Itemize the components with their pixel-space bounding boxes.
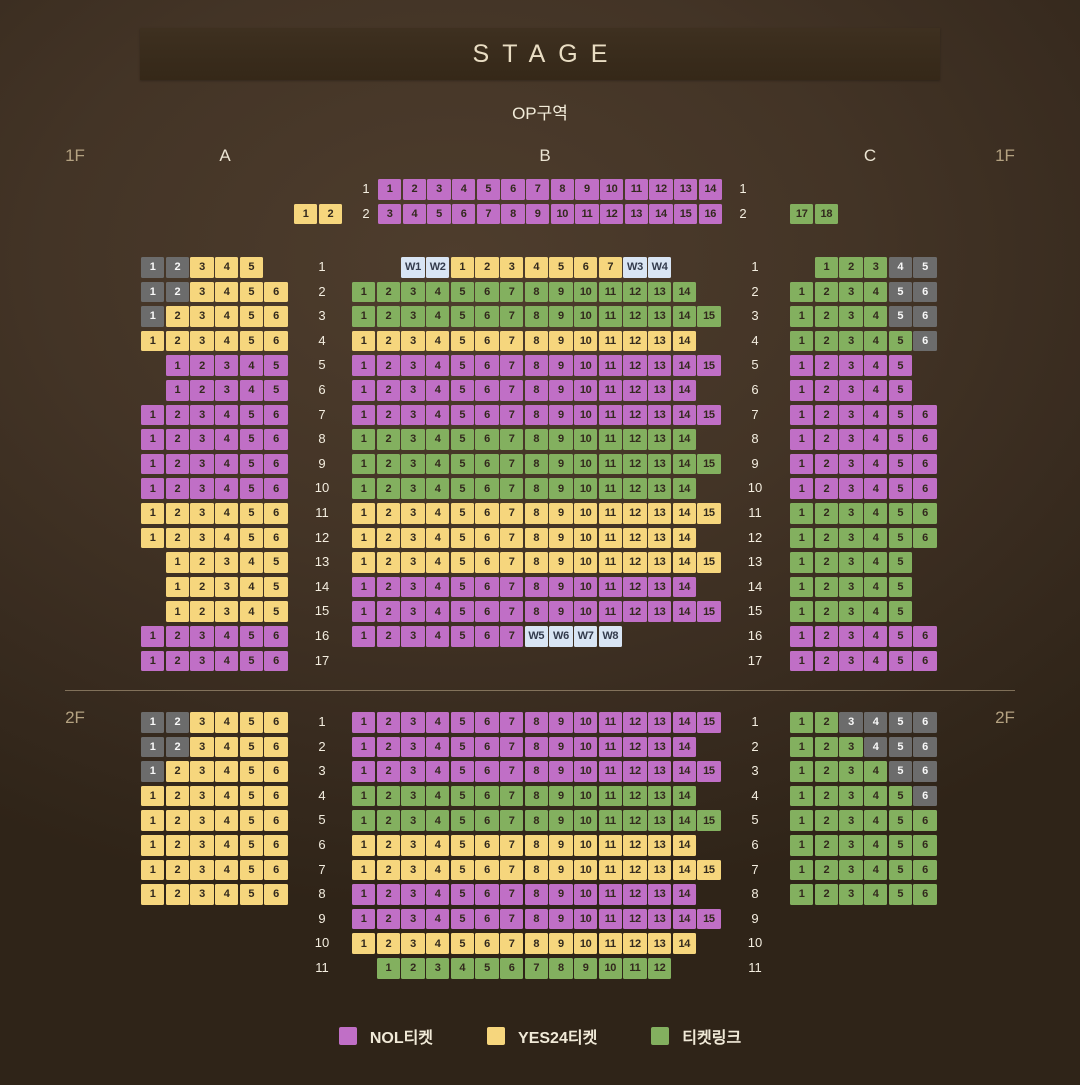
seat-1f-c-15-5[interactable]: 5 bbox=[889, 601, 912, 622]
seat-2f-b-5-7[interactable]: 7 bbox=[500, 810, 523, 831]
seat-1f-b-9-11[interactable]: 11 bbox=[599, 454, 622, 475]
seat-1f-b-6-9[interactable]: 9 bbox=[549, 380, 572, 401]
seat-1f-c-9-4[interactable]: 4 bbox=[864, 454, 887, 475]
seat-1f-c-17-2[interactable]: 2 bbox=[815, 651, 838, 672]
seat-2f-b-11-3[interactable]: 3 bbox=[426, 958, 449, 979]
seat-1f-b-4-12[interactable]: 12 bbox=[623, 331, 646, 352]
seat-1f-b-12-11[interactable]: 11 bbox=[599, 528, 622, 549]
seat-1f-b-6-5[interactable]: 5 bbox=[451, 380, 474, 401]
seat-2f-c-6-4[interactable]: 4 bbox=[864, 835, 887, 856]
seat-1f-b-11-10[interactable]: 10 bbox=[574, 503, 597, 524]
seat-1f-b-5-12[interactable]: 12 bbox=[623, 355, 646, 376]
seat-2f-b-1-7[interactable]: 7 bbox=[500, 712, 523, 733]
seat-2f-b-1-3[interactable]: 3 bbox=[401, 712, 424, 733]
seat-1f-b-10-14[interactable]: 14 bbox=[673, 478, 696, 499]
seat-op-c-2-18[interactable]: 18 bbox=[815, 204, 838, 225]
seat-1f-b-15-14[interactable]: 14 bbox=[673, 601, 696, 622]
seat-1f-b-2-2[interactable]: 2 bbox=[377, 282, 400, 303]
seat-1f-b-4-2[interactable]: 2 bbox=[377, 331, 400, 352]
seat-2f-a-4-5[interactable]: 5 bbox=[240, 786, 263, 807]
seat-1f-b-8-13[interactable]: 13 bbox=[648, 429, 671, 450]
seat-1f-c-9-2[interactable]: 2 bbox=[815, 454, 838, 475]
seat-1f-a-14-4[interactable]: 4 bbox=[240, 577, 263, 598]
seat-1f-a-16-1[interactable]: 1 bbox=[141, 626, 164, 647]
seat-2f-a-3-5[interactable]: 5 bbox=[240, 761, 263, 782]
seat-1f-c-16-6[interactable]: 6 bbox=[913, 626, 936, 647]
seat-2f-b-7-2[interactable]: 2 bbox=[377, 860, 400, 881]
seat-1f-b-1-W3[interactable]: W3 bbox=[623, 257, 646, 278]
seat-2f-b-9-8[interactable]: 8 bbox=[525, 909, 548, 930]
seat-1f-a-12-2[interactable]: 2 bbox=[166, 528, 189, 549]
seat-1f-c-13-4[interactable]: 4 bbox=[864, 552, 887, 573]
seat-1f-a-9-2[interactable]: 2 bbox=[166, 454, 189, 475]
seat-2f-b-3-13[interactable]: 13 bbox=[648, 761, 671, 782]
seat-1f-c-7-4[interactable]: 4 bbox=[864, 405, 887, 426]
seat-1f-c-3-2[interactable]: 2 bbox=[815, 306, 838, 327]
seat-op-b-2-4[interactable]: 4 bbox=[403, 204, 426, 225]
seat-2f-b-6-14[interactable]: 14 bbox=[673, 835, 696, 856]
seat-1f-a-3-6[interactable]: 6 bbox=[264, 306, 287, 327]
seat-2f-a-3-2[interactable]: 2 bbox=[166, 761, 189, 782]
seat-1f-c-17-3[interactable]: 3 bbox=[839, 651, 862, 672]
seat-2f-b-11-4[interactable]: 4 bbox=[451, 958, 474, 979]
seat-1f-c-4-2[interactable]: 2 bbox=[815, 331, 838, 352]
seat-1f-b-3-8[interactable]: 8 bbox=[525, 306, 548, 327]
seat-1f-b-11-4[interactable]: 4 bbox=[426, 503, 449, 524]
seat-1f-b-9-5[interactable]: 5 bbox=[451, 454, 474, 475]
seat-2f-b-5-4[interactable]: 4 bbox=[426, 810, 449, 831]
seat-1f-b-2-13[interactable]: 13 bbox=[648, 282, 671, 303]
seat-1f-b-13-6[interactable]: 6 bbox=[475, 552, 498, 573]
seat-1f-c-15-2[interactable]: 2 bbox=[815, 601, 838, 622]
seat-1f-b-10-11[interactable]: 11 bbox=[599, 478, 622, 499]
seat-1f-b-6-10[interactable]: 10 bbox=[574, 380, 597, 401]
seat-op-b-1-14[interactable]: 14 bbox=[699, 179, 722, 200]
seat-2f-b-3-10[interactable]: 10 bbox=[574, 761, 597, 782]
seat-1f-b-7-6[interactable]: 6 bbox=[475, 405, 498, 426]
seat-2f-c-1-2[interactable]: 2 bbox=[815, 712, 838, 733]
seat-1f-b-14-11[interactable]: 11 bbox=[599, 577, 622, 598]
seat-1f-b-5-5[interactable]: 5 bbox=[451, 355, 474, 376]
seat-2f-a-4-6[interactable]: 6 bbox=[264, 786, 287, 807]
seat-1f-b-14-1[interactable]: 1 bbox=[352, 577, 375, 598]
seat-1f-b-14-6[interactable]: 6 bbox=[475, 577, 498, 598]
seat-1f-b-15-10[interactable]: 10 bbox=[574, 601, 597, 622]
seat-1f-b-16-2[interactable]: 2 bbox=[377, 626, 400, 647]
seat-1f-b-3-3[interactable]: 3 bbox=[401, 306, 424, 327]
seat-1f-b-4-1[interactable]: 1 bbox=[352, 331, 375, 352]
seat-1f-b-8-4[interactable]: 4 bbox=[426, 429, 449, 450]
seat-1f-b-10-4[interactable]: 4 bbox=[426, 478, 449, 499]
seat-op-b-1-8[interactable]: 8 bbox=[551, 179, 574, 200]
seat-1f-c-8-6[interactable]: 6 bbox=[913, 429, 936, 450]
seat-1f-b-10-1[interactable]: 1 bbox=[352, 478, 375, 499]
seat-1f-b-5-3[interactable]: 3 bbox=[401, 355, 424, 376]
seat-1f-c-12-2[interactable]: 2 bbox=[815, 528, 838, 549]
seat-1f-c-10-6[interactable]: 6 bbox=[913, 478, 936, 499]
seat-1f-b-10-5[interactable]: 5 bbox=[451, 478, 474, 499]
seat-1f-b-8-14[interactable]: 14 bbox=[673, 429, 696, 450]
seat-2f-b-11-9[interactable]: 9 bbox=[574, 958, 597, 979]
seat-2f-a-4-1[interactable]: 1 bbox=[141, 786, 164, 807]
seat-1f-b-7-1[interactable]: 1 bbox=[352, 405, 375, 426]
seat-1f-b-11-15[interactable]: 15 bbox=[697, 503, 720, 524]
seat-1f-a-14-3[interactable]: 3 bbox=[215, 577, 238, 598]
seat-2f-b-2-1[interactable]: 1 bbox=[352, 737, 375, 758]
seat-1f-a-9-4[interactable]: 4 bbox=[215, 454, 238, 475]
seat-1f-b-2-3[interactable]: 3 bbox=[401, 282, 424, 303]
seat-1f-c-3-4[interactable]: 4 bbox=[864, 306, 887, 327]
seat-2f-b-9-12[interactable]: 12 bbox=[623, 909, 646, 930]
seat-2f-b-5-5[interactable]: 5 bbox=[451, 810, 474, 831]
seat-1f-c-10-1[interactable]: 1 bbox=[790, 478, 813, 499]
seat-1f-a-7-2[interactable]: 2 bbox=[166, 405, 189, 426]
seat-2f-b-9-5[interactable]: 5 bbox=[451, 909, 474, 930]
seat-2f-b-5-13[interactable]: 13 bbox=[648, 810, 671, 831]
seat-1f-a-9-1[interactable]: 1 bbox=[141, 454, 164, 475]
seat-1f-a-8-1[interactable]: 1 bbox=[141, 429, 164, 450]
seat-2f-b-5-8[interactable]: 8 bbox=[525, 810, 548, 831]
seat-1f-c-7-3[interactable]: 3 bbox=[839, 405, 862, 426]
seat-2f-c-7-1[interactable]: 1 bbox=[790, 860, 813, 881]
seat-op-b-1-7[interactable]: 7 bbox=[526, 179, 549, 200]
seat-1f-c-12-4[interactable]: 4 bbox=[864, 528, 887, 549]
seat-2f-b-2-10[interactable]: 10 bbox=[574, 737, 597, 758]
seat-1f-c-6-2[interactable]: 2 bbox=[815, 380, 838, 401]
seat-2f-a-7-1[interactable]: 1 bbox=[141, 860, 164, 881]
seat-2f-a-7-4[interactable]: 4 bbox=[215, 860, 238, 881]
seat-2f-a-5-6[interactable]: 6 bbox=[264, 810, 287, 831]
seat-1f-b-7-9[interactable]: 9 bbox=[549, 405, 572, 426]
seat-2f-c-8-5[interactable]: 5 bbox=[889, 884, 912, 905]
seat-2f-b-11-5[interactable]: 5 bbox=[475, 958, 498, 979]
seat-1f-b-9-8[interactable]: 8 bbox=[525, 454, 548, 475]
seat-1f-a-15-4[interactable]: 4 bbox=[240, 601, 263, 622]
seat-1f-a-3-4[interactable]: 4 bbox=[215, 306, 238, 327]
seat-2f-b-9-13[interactable]: 13 bbox=[648, 909, 671, 930]
seat-1f-b-2-14[interactable]: 14 bbox=[673, 282, 696, 303]
seat-1f-b-14-4[interactable]: 4 bbox=[426, 577, 449, 598]
seat-2f-b-5-3[interactable]: 3 bbox=[401, 810, 424, 831]
seat-1f-b-4-14[interactable]: 14 bbox=[673, 331, 696, 352]
seat-2f-b-1-14[interactable]: 14 bbox=[673, 712, 696, 733]
seat-2f-b-10-10[interactable]: 10 bbox=[574, 933, 597, 954]
seat-1f-b-15-7[interactable]: 7 bbox=[500, 601, 523, 622]
seat-1f-c-14-5[interactable]: 5 bbox=[889, 577, 912, 598]
seat-2f-b-3-2[interactable]: 2 bbox=[377, 761, 400, 782]
seat-1f-b-5-6[interactable]: 6 bbox=[475, 355, 498, 376]
seat-2f-b-11-2[interactable]: 2 bbox=[401, 958, 424, 979]
seat-1f-b-11-8[interactable]: 8 bbox=[525, 503, 548, 524]
seat-1f-a-11-3[interactable]: 3 bbox=[190, 503, 213, 524]
seat-1f-c-11-6[interactable]: 6 bbox=[913, 503, 936, 524]
seat-op-a-2-1[interactable]: 1 bbox=[294, 204, 317, 225]
seat-2f-b-2-4[interactable]: 4 bbox=[426, 737, 449, 758]
seat-1f-b-1-5[interactable]: 5 bbox=[549, 257, 572, 278]
seat-2f-b-5-1[interactable]: 1 bbox=[352, 810, 375, 831]
seat-2f-b-6-11[interactable]: 11 bbox=[599, 835, 622, 856]
seat-1f-b-13-1[interactable]: 1 bbox=[352, 552, 375, 573]
seat-1f-b-14-9[interactable]: 9 bbox=[549, 577, 572, 598]
seat-2f-b-4-12[interactable]: 12 bbox=[623, 786, 646, 807]
seat-1f-c-14-3[interactable]: 3 bbox=[839, 577, 862, 598]
seat-1f-b-14-14[interactable]: 14 bbox=[673, 577, 696, 598]
seat-1f-b-13-4[interactable]: 4 bbox=[426, 552, 449, 573]
seat-2f-b-2-13[interactable]: 13 bbox=[648, 737, 671, 758]
seat-1f-a-16-5[interactable]: 5 bbox=[240, 626, 263, 647]
seat-2f-b-5-14[interactable]: 14 bbox=[673, 810, 696, 831]
seat-1f-b-4-13[interactable]: 13 bbox=[648, 331, 671, 352]
seat-2f-b-3-1[interactable]: 1 bbox=[352, 761, 375, 782]
seat-2f-b-9-11[interactable]: 11 bbox=[599, 909, 622, 930]
seat-2f-b-5-6[interactable]: 6 bbox=[475, 810, 498, 831]
seat-1f-c-16-1[interactable]: 1 bbox=[790, 626, 813, 647]
seat-1f-c-2-4[interactable]: 4 bbox=[864, 282, 887, 303]
seat-2f-b-3-5[interactable]: 5 bbox=[451, 761, 474, 782]
seat-2f-a-3-4[interactable]: 4 bbox=[215, 761, 238, 782]
seat-1f-a-10-6[interactable]: 6 bbox=[264, 478, 287, 499]
seat-2f-a-3-3[interactable]: 3 bbox=[190, 761, 213, 782]
seat-2f-b-6-5[interactable]: 5 bbox=[451, 835, 474, 856]
seat-1f-b-16-W7[interactable]: W7 bbox=[574, 626, 597, 647]
seat-2f-b-10-7[interactable]: 7 bbox=[500, 933, 523, 954]
seat-2f-b-9-6[interactable]: 6 bbox=[475, 909, 498, 930]
seat-op-b-1-9[interactable]: 9 bbox=[575, 179, 598, 200]
seat-1f-b-10-7[interactable]: 7 bbox=[500, 478, 523, 499]
seat-1f-a-8-6[interactable]: 6 bbox=[264, 429, 287, 450]
seat-1f-c-8-4[interactable]: 4 bbox=[864, 429, 887, 450]
seat-2f-b-1-1[interactable]: 1 bbox=[352, 712, 375, 733]
seat-1f-a-13-1[interactable]: 1 bbox=[166, 552, 189, 573]
seat-2f-b-4-6[interactable]: 6 bbox=[475, 786, 498, 807]
seat-1f-b-11-13[interactable]: 13 bbox=[648, 503, 671, 524]
seat-2f-b-4-8[interactable]: 8 bbox=[525, 786, 548, 807]
seat-1f-a-16-2[interactable]: 2 bbox=[166, 626, 189, 647]
seat-2f-b-9-10[interactable]: 10 bbox=[574, 909, 597, 930]
seat-1f-c-10-2[interactable]: 2 bbox=[815, 478, 838, 499]
seat-2f-b-3-6[interactable]: 6 bbox=[475, 761, 498, 782]
seat-2f-c-7-3[interactable]: 3 bbox=[839, 860, 862, 881]
seat-1f-a-4-6[interactable]: 6 bbox=[264, 331, 287, 352]
seat-1f-a-5-3[interactable]: 3 bbox=[215, 355, 238, 376]
seat-1f-b-11-5[interactable]: 5 bbox=[451, 503, 474, 524]
seat-2f-c-2-2[interactable]: 2 bbox=[815, 737, 838, 758]
seat-1f-b-6-11[interactable]: 11 bbox=[599, 380, 622, 401]
seat-1f-c-11-1[interactable]: 1 bbox=[790, 503, 813, 524]
seat-op-b-1-12[interactable]: 12 bbox=[649, 179, 672, 200]
seat-1f-b-2-1[interactable]: 1 bbox=[352, 282, 375, 303]
seat-1f-c-3-3[interactable]: 3 bbox=[839, 306, 862, 327]
seat-2f-b-5-15[interactable]: 15 bbox=[697, 810, 720, 831]
seat-1f-a-3-3[interactable]: 3 bbox=[190, 306, 213, 327]
seat-1f-a-13-3[interactable]: 3 bbox=[215, 552, 238, 573]
seat-1f-b-4-7[interactable]: 7 bbox=[500, 331, 523, 352]
seat-1f-b-9-7[interactable]: 7 bbox=[500, 454, 523, 475]
seat-op-b-2-6[interactable]: 6 bbox=[452, 204, 475, 225]
seat-1f-a-16-6[interactable]: 6 bbox=[264, 626, 287, 647]
seat-1f-b-7-5[interactable]: 5 bbox=[451, 405, 474, 426]
seat-2f-a-8-3[interactable]: 3 bbox=[190, 884, 213, 905]
seat-1f-b-13-3[interactable]: 3 bbox=[401, 552, 424, 573]
seat-1f-b-12-14[interactable]: 14 bbox=[673, 528, 696, 549]
seat-1f-a-3-5[interactable]: 5 bbox=[240, 306, 263, 327]
seat-1f-b-11-6[interactable]: 6 bbox=[475, 503, 498, 524]
seat-1f-b-15-1[interactable]: 1 bbox=[352, 601, 375, 622]
seat-1f-b-4-9[interactable]: 9 bbox=[549, 331, 572, 352]
seat-2f-b-2-11[interactable]: 11 bbox=[599, 737, 622, 758]
seat-1f-c-4-5[interactable]: 5 bbox=[889, 331, 912, 352]
seat-1f-a-12-1[interactable]: 1 bbox=[141, 528, 164, 549]
seat-1f-b-2-12[interactable]: 12 bbox=[623, 282, 646, 303]
seat-1f-b-16-W6[interactable]: W6 bbox=[549, 626, 572, 647]
seat-1f-c-12-6[interactable]: 6 bbox=[913, 528, 936, 549]
seat-1f-c-17-4[interactable]: 4 bbox=[864, 651, 887, 672]
seat-1f-b-12-5[interactable]: 5 bbox=[451, 528, 474, 549]
seat-1f-a-14-2[interactable]: 2 bbox=[190, 577, 213, 598]
seat-1f-a-1-3[interactable]: 3 bbox=[190, 257, 213, 278]
seat-1f-a-12-5[interactable]: 5 bbox=[240, 528, 263, 549]
seat-2f-a-7-5[interactable]: 5 bbox=[240, 860, 263, 881]
seat-1f-c-14-2[interactable]: 2 bbox=[815, 577, 838, 598]
seat-2f-a-6-6[interactable]: 6 bbox=[264, 835, 287, 856]
seat-1f-b-8-12[interactable]: 12 bbox=[623, 429, 646, 450]
seat-2f-c-8-6[interactable]: 6 bbox=[913, 884, 936, 905]
seat-2f-c-3-4[interactable]: 4 bbox=[864, 761, 887, 782]
seat-op-b-2-13[interactable]: 13 bbox=[625, 204, 648, 225]
seat-2f-b-6-3[interactable]: 3 bbox=[401, 835, 424, 856]
seat-2f-b-7-8[interactable]: 8 bbox=[525, 860, 548, 881]
seat-1f-b-3-14[interactable]: 14 bbox=[673, 306, 696, 327]
seat-2f-b-4-1[interactable]: 1 bbox=[352, 786, 375, 807]
seat-1f-c-17-1[interactable]: 1 bbox=[790, 651, 813, 672]
seat-1f-b-11-1[interactable]: 1 bbox=[352, 503, 375, 524]
seat-2f-c-5-3[interactable]: 3 bbox=[839, 810, 862, 831]
seat-1f-c-13-5[interactable]: 5 bbox=[889, 552, 912, 573]
seat-op-b-1-2[interactable]: 2 bbox=[403, 179, 426, 200]
seat-1f-c-8-2[interactable]: 2 bbox=[815, 429, 838, 450]
seat-2f-b-3-8[interactable]: 8 bbox=[525, 761, 548, 782]
seat-1f-b-13-10[interactable]: 10 bbox=[574, 552, 597, 573]
seat-2f-b-10-6[interactable]: 6 bbox=[475, 933, 498, 954]
seat-2f-b-1-2[interactable]: 2 bbox=[377, 712, 400, 733]
seat-1f-a-6-1[interactable]: 1 bbox=[166, 380, 189, 401]
seat-2f-a-8-2[interactable]: 2 bbox=[166, 884, 189, 905]
seat-1f-b-8-1[interactable]: 1 bbox=[352, 429, 375, 450]
seat-2f-a-6-5[interactable]: 5 bbox=[240, 835, 263, 856]
seat-1f-c-6-3[interactable]: 3 bbox=[839, 380, 862, 401]
seat-1f-b-2-5[interactable]: 5 bbox=[451, 282, 474, 303]
seat-2f-c-2-1[interactable]: 1 bbox=[790, 737, 813, 758]
seat-2f-b-9-3[interactable]: 3 bbox=[401, 909, 424, 930]
seat-2f-b-10-3[interactable]: 3 bbox=[401, 933, 424, 954]
seat-2f-c-6-1[interactable]: 1 bbox=[790, 835, 813, 856]
seat-2f-c-5-5[interactable]: 5 bbox=[889, 810, 912, 831]
seat-2f-a-4-4[interactable]: 4 bbox=[215, 786, 238, 807]
seat-2f-b-6-7[interactable]: 7 bbox=[500, 835, 523, 856]
seat-1f-a-12-3[interactable]: 3 bbox=[190, 528, 213, 549]
seat-1f-a-17-2[interactable]: 2 bbox=[166, 651, 189, 672]
seat-2f-b-7-9[interactable]: 9 bbox=[549, 860, 572, 881]
seat-1f-b-2-8[interactable]: 8 bbox=[525, 282, 548, 303]
seat-1f-b-7-3[interactable]: 3 bbox=[401, 405, 424, 426]
seat-1f-c-8-3[interactable]: 3 bbox=[839, 429, 862, 450]
seat-1f-b-1-W2[interactable]: W2 bbox=[426, 257, 449, 278]
seat-1f-b-9-2[interactable]: 2 bbox=[377, 454, 400, 475]
seat-2f-a-1-3[interactable]: 3 bbox=[190, 712, 213, 733]
seat-2f-b-4-7[interactable]: 7 bbox=[500, 786, 523, 807]
seat-op-a-2-2[interactable]: 2 bbox=[319, 204, 342, 225]
seat-1f-b-9-4[interactable]: 4 bbox=[426, 454, 449, 475]
seat-2f-b-3-4[interactable]: 4 bbox=[426, 761, 449, 782]
seat-2f-c-4-1[interactable]: 1 bbox=[790, 786, 813, 807]
seat-2f-a-7-6[interactable]: 6 bbox=[264, 860, 287, 881]
seat-2f-b-2-6[interactable]: 6 bbox=[475, 737, 498, 758]
seat-1f-b-7-11[interactable]: 11 bbox=[599, 405, 622, 426]
seat-2f-b-9-14[interactable]: 14 bbox=[673, 909, 696, 930]
seat-1f-b-9-14[interactable]: 14 bbox=[673, 454, 696, 475]
seat-1f-a-12-6[interactable]: 6 bbox=[264, 528, 287, 549]
seat-1f-b-9-6[interactable]: 6 bbox=[475, 454, 498, 475]
seat-2f-c-6-6[interactable]: 6 bbox=[913, 835, 936, 856]
seat-1f-b-2-6[interactable]: 6 bbox=[475, 282, 498, 303]
seat-1f-b-13-13[interactable]: 13 bbox=[648, 552, 671, 573]
seat-1f-c-16-4[interactable]: 4 bbox=[864, 626, 887, 647]
seat-1f-c-1-2[interactable]: 2 bbox=[839, 257, 862, 278]
seat-2f-b-9-1[interactable]: 1 bbox=[352, 909, 375, 930]
seat-1f-c-9-6[interactable]: 6 bbox=[913, 454, 936, 475]
seat-1f-a-10-5[interactable]: 5 bbox=[240, 478, 263, 499]
seat-1f-a-11-2[interactable]: 2 bbox=[166, 503, 189, 524]
seat-1f-b-10-8[interactable]: 8 bbox=[525, 478, 548, 499]
seat-2f-b-8-11[interactable]: 11 bbox=[599, 884, 622, 905]
seat-1f-a-9-5[interactable]: 5 bbox=[240, 454, 263, 475]
seat-1f-b-15-11[interactable]: 11 bbox=[599, 601, 622, 622]
seat-2f-a-6-3[interactable]: 3 bbox=[190, 835, 213, 856]
seat-2f-b-6-13[interactable]: 13 bbox=[648, 835, 671, 856]
seat-2f-b-4-2[interactable]: 2 bbox=[377, 786, 400, 807]
seat-1f-b-6-8[interactable]: 8 bbox=[525, 380, 548, 401]
seat-1f-b-5-9[interactable]: 9 bbox=[549, 355, 572, 376]
seat-1f-c-12-1[interactable]: 1 bbox=[790, 528, 813, 549]
seat-1f-b-5-8[interactable]: 8 bbox=[525, 355, 548, 376]
seat-1f-b-4-10[interactable]: 10 bbox=[574, 331, 597, 352]
seat-2f-b-8-9[interactable]: 9 bbox=[549, 884, 572, 905]
seat-2f-b-1-11[interactable]: 11 bbox=[599, 712, 622, 733]
seat-2f-b-11-12[interactable]: 12 bbox=[648, 958, 671, 979]
seat-2f-b-11-10[interactable]: 10 bbox=[599, 958, 622, 979]
seat-1f-b-4-3[interactable]: 3 bbox=[401, 331, 424, 352]
seat-1f-b-12-8[interactable]: 8 bbox=[525, 528, 548, 549]
seat-2f-b-9-7[interactable]: 7 bbox=[500, 909, 523, 930]
seat-1f-a-17-6[interactable]: 6 bbox=[264, 651, 287, 672]
seat-2f-c-7-5[interactable]: 5 bbox=[889, 860, 912, 881]
seat-1f-b-12-6[interactable]: 6 bbox=[475, 528, 498, 549]
seat-1f-b-12-2[interactable]: 2 bbox=[377, 528, 400, 549]
seat-1f-b-6-1[interactable]: 1 bbox=[352, 380, 375, 401]
seat-2f-c-5-1[interactable]: 1 bbox=[790, 810, 813, 831]
seat-1f-b-2-4[interactable]: 4 bbox=[426, 282, 449, 303]
seat-1f-b-1-W4[interactable]: W4 bbox=[648, 257, 671, 278]
seat-1f-b-5-14[interactable]: 14 bbox=[673, 355, 696, 376]
seat-1f-b-8-3[interactable]: 3 bbox=[401, 429, 424, 450]
seat-op-b-2-7[interactable]: 7 bbox=[477, 204, 500, 225]
seat-1f-a-2-5[interactable]: 5 bbox=[240, 282, 263, 303]
seat-1f-b-9-1[interactable]: 1 bbox=[352, 454, 375, 475]
seat-2f-b-10-8[interactable]: 8 bbox=[525, 933, 548, 954]
seat-2f-b-2-5[interactable]: 5 bbox=[451, 737, 474, 758]
seat-2f-b-9-2[interactable]: 2 bbox=[377, 909, 400, 930]
seat-1f-b-15-6[interactable]: 6 bbox=[475, 601, 498, 622]
